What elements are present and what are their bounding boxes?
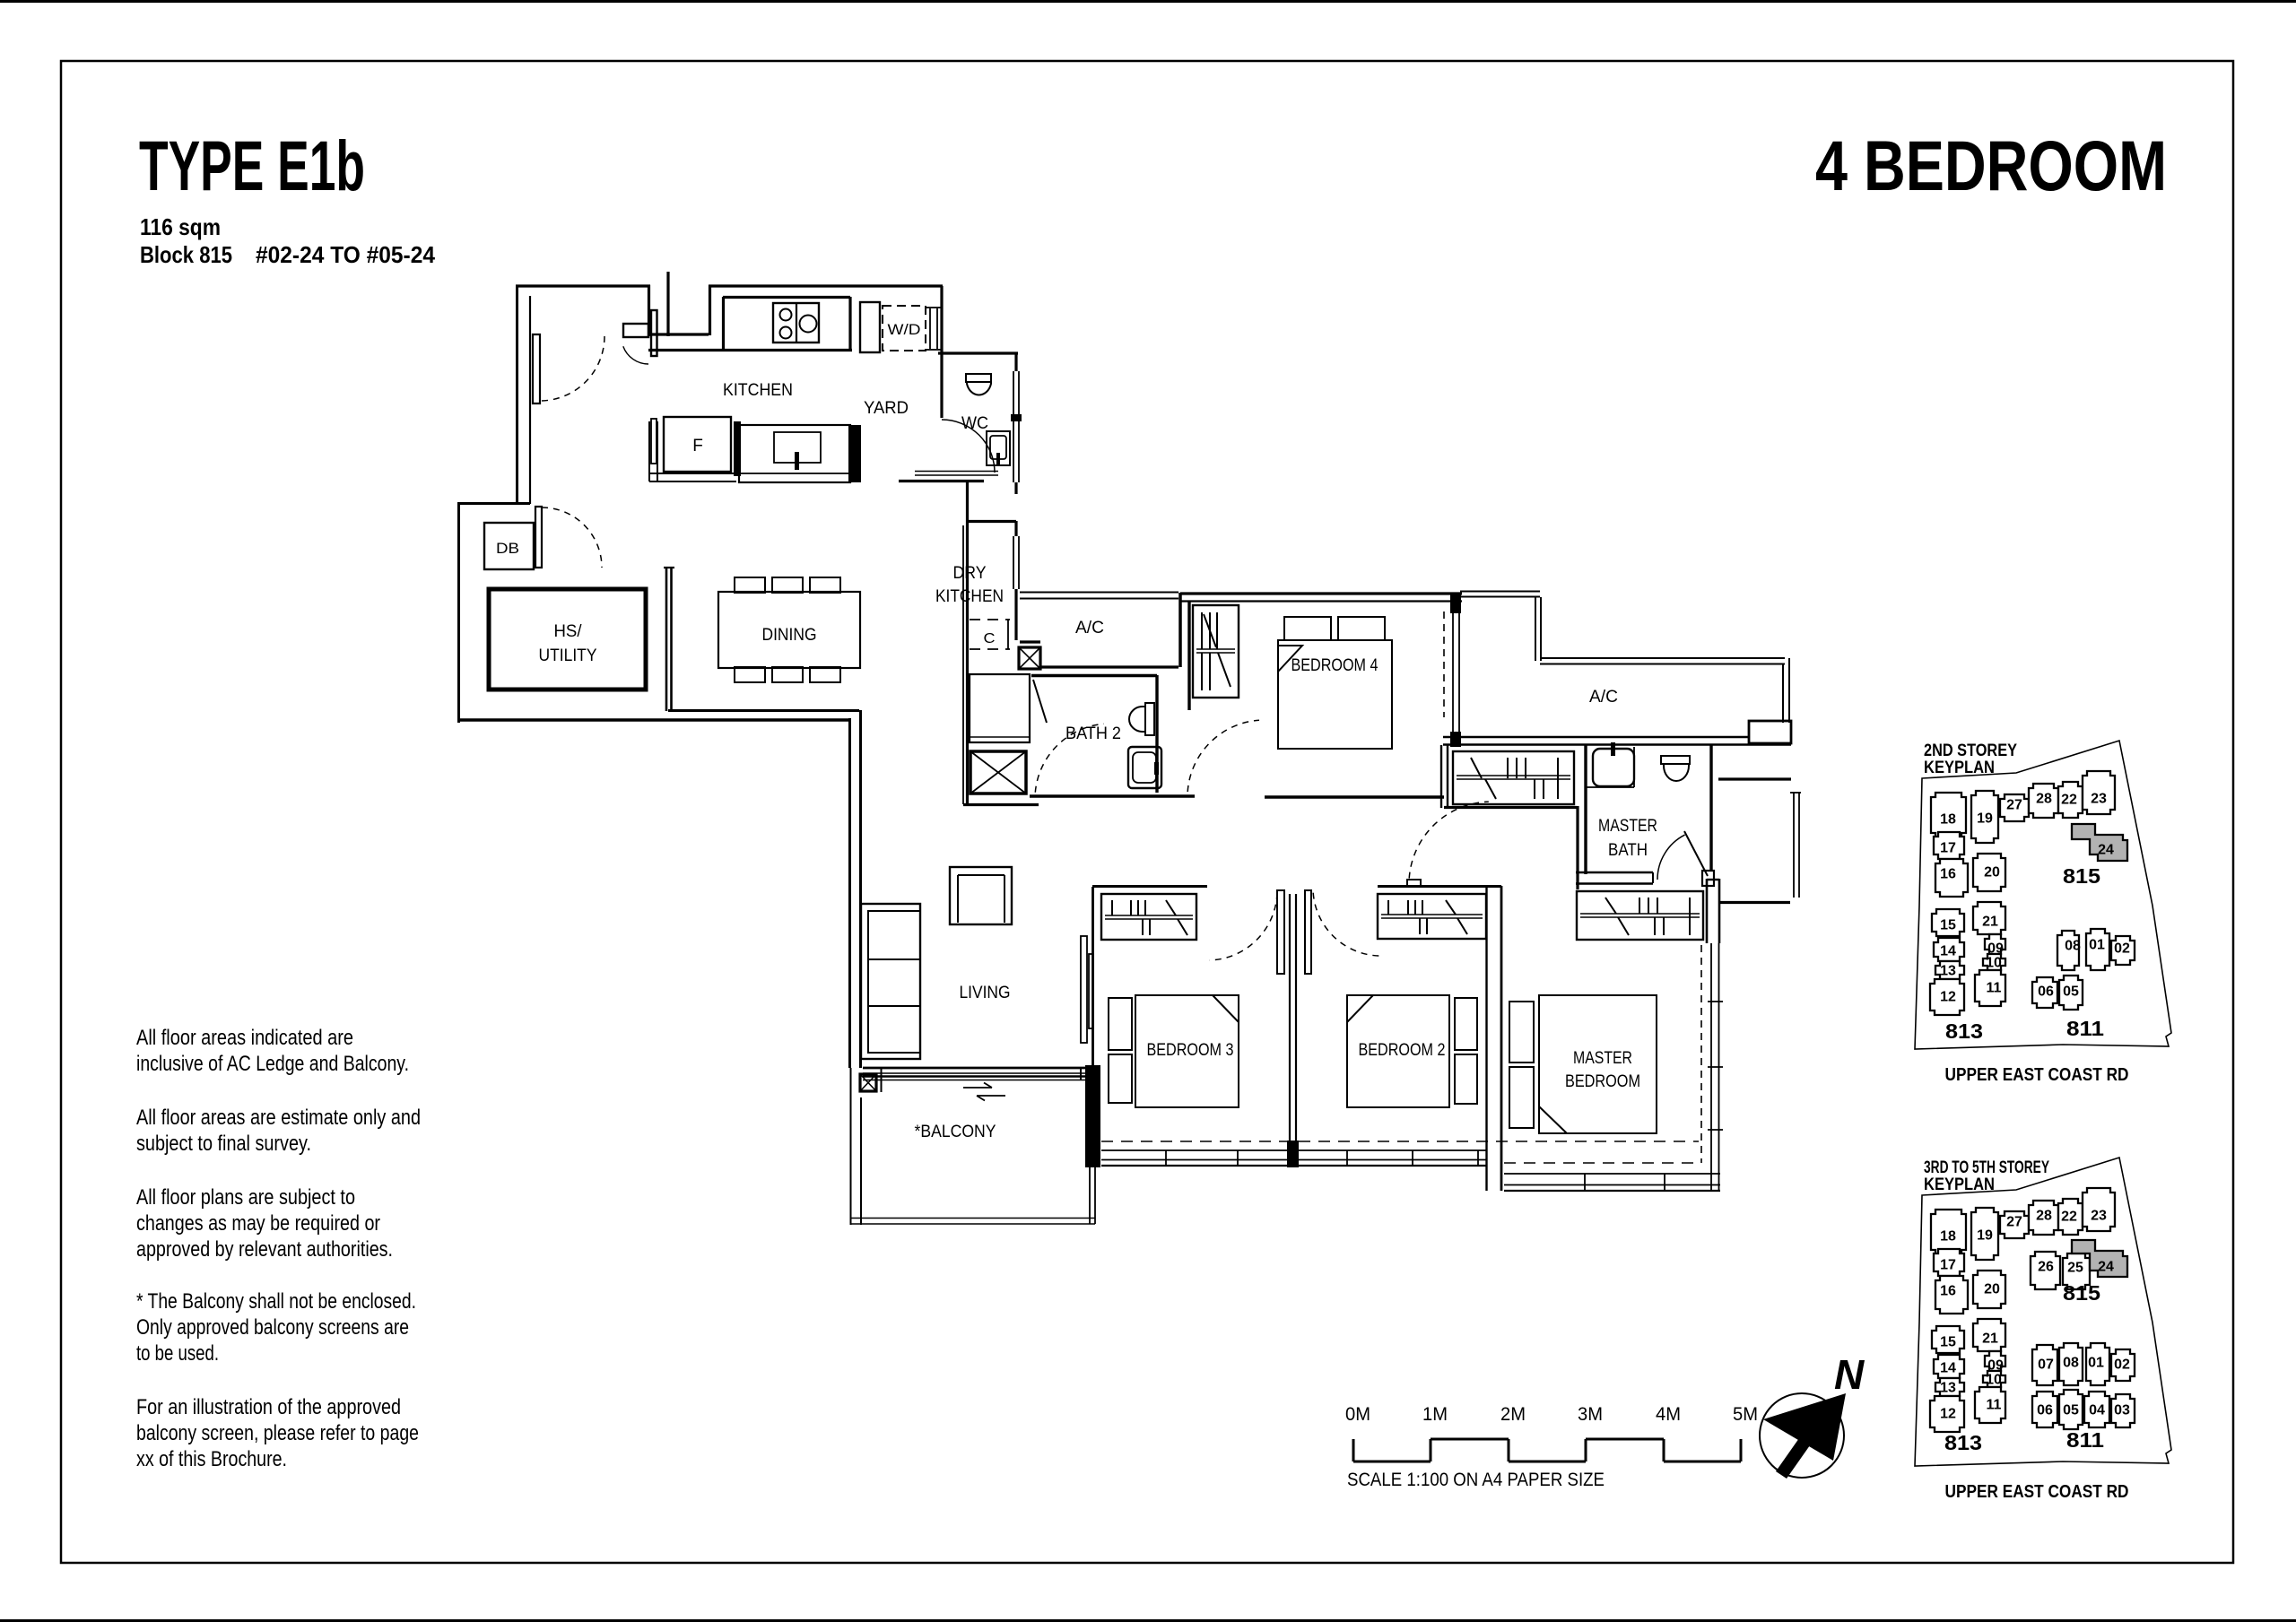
svg-text:811: 811 xyxy=(2066,1017,2104,1040)
svg-text:22: 22 xyxy=(2061,1210,2077,1225)
svg-text:C: C xyxy=(984,631,996,646)
svg-text:N: N xyxy=(1834,1351,1865,1398)
svg-text:23: 23 xyxy=(2091,1209,2107,1224)
svg-text:19: 19 xyxy=(1977,1228,1993,1244)
svg-text:28: 28 xyxy=(2036,1209,2052,1224)
svg-text:01: 01 xyxy=(2089,938,2105,953)
svg-text:0M: 0M xyxy=(1345,1404,1370,1425)
svg-text:LIVING: LIVING xyxy=(960,984,1011,1002)
svg-text:BEDROOM: BEDROOM xyxy=(1565,1072,1640,1091)
svg-text:A/C: A/C xyxy=(1589,688,1618,707)
svg-text:13: 13 xyxy=(1940,964,1956,979)
svg-text:25: 25 xyxy=(2067,1261,2083,1276)
svg-text:18: 18 xyxy=(1940,812,1956,828)
svg-text:16: 16 xyxy=(1940,1284,1956,1299)
svg-text:05: 05 xyxy=(2063,984,2079,1000)
svg-text:2M: 2M xyxy=(1500,1404,1526,1425)
svg-text:to be used.: to be used. xyxy=(136,1341,219,1366)
svg-text:16: 16 xyxy=(1940,867,1956,882)
svg-text:05: 05 xyxy=(2063,1403,2079,1418)
svg-text:DRY: DRY xyxy=(953,564,987,583)
svg-text:UTILITY: UTILITY xyxy=(539,646,597,665)
svg-text:22: 22 xyxy=(2061,793,2077,808)
svg-text:27: 27 xyxy=(2006,798,2022,813)
svg-text:10: 10 xyxy=(1986,956,2002,971)
svg-text:17: 17 xyxy=(1940,1258,1956,1273)
svg-text:Block 815: Block 815 xyxy=(140,241,232,268)
svg-text:HS/: HS/ xyxy=(554,622,583,641)
svg-text:813: 813 xyxy=(1945,1019,1983,1043)
svg-text:For an illustration of the app: For an illustration of the approved xyxy=(136,1395,401,1419)
svg-text:approved by relevant authoriti: approved by relevant authorities. xyxy=(136,1237,393,1262)
svg-text:24: 24 xyxy=(2098,1260,2114,1275)
svg-text:*BALCONY: *BALCONY xyxy=(915,1123,996,1141)
svg-text:#02-24 TO #05-24: #02-24 TO #05-24 xyxy=(256,241,436,268)
svg-text:UPPER EAST COAST RD: UPPER EAST COAST RD xyxy=(1945,1482,2129,1502)
svg-text:All floor plans are subject to: All floor plans are subject to xyxy=(136,1185,355,1210)
svg-text:SCALE 1:100 ON A4 PAPER SIZE: SCALE 1:100 ON A4 PAPER SIZE xyxy=(1347,1470,1605,1490)
svg-text:20: 20 xyxy=(1984,865,2000,880)
svg-text:815: 815 xyxy=(2063,1281,2100,1305)
svg-text:W/D: W/D xyxy=(888,321,921,338)
svg-text:KITCHEN: KITCHEN xyxy=(723,381,793,400)
svg-text:13: 13 xyxy=(1940,1381,1956,1396)
svg-text:MASTER: MASTER xyxy=(1573,1049,1632,1068)
svg-text:02: 02 xyxy=(2114,1357,2130,1373)
svg-text:08: 08 xyxy=(2063,1356,2079,1371)
svg-text:12: 12 xyxy=(1940,1407,1956,1422)
svg-text:* The Balcony shall not be enc: * The Balcony shall not be enclosed. xyxy=(136,1289,416,1314)
svg-text:07: 07 xyxy=(2038,1357,2054,1373)
svg-text:11: 11 xyxy=(1987,981,2002,996)
svg-text:06: 06 xyxy=(2037,1403,2053,1418)
svg-text:All floor areas indicated are: All floor areas indicated are xyxy=(136,1026,353,1050)
svg-text:14: 14 xyxy=(1940,944,1956,959)
svg-text:06: 06 xyxy=(2038,984,2054,1000)
svg-text:21: 21 xyxy=(1982,915,1998,930)
svg-text:27: 27 xyxy=(2006,1215,2022,1230)
svg-text:811: 811 xyxy=(2066,1428,2104,1452)
svg-text:5M: 5M xyxy=(1733,1404,1758,1425)
svg-text:TYPE E1b: TYPE E1b xyxy=(139,126,365,205)
svg-text:BEDROOM 2: BEDROOM 2 xyxy=(1359,1041,1446,1060)
svg-text:10: 10 xyxy=(1986,1373,2002,1388)
svg-text:02: 02 xyxy=(2114,941,2130,957)
svg-text:BEDROOM 4: BEDROOM 4 xyxy=(1291,656,1378,675)
svg-text:MASTER: MASTER xyxy=(1598,817,1657,836)
svg-text:xx of this Brochure.: xx of this Brochure. xyxy=(136,1447,287,1471)
svg-text:116 sqm: 116 sqm xyxy=(140,213,221,240)
svg-text:F: F xyxy=(692,437,703,455)
svg-text:28: 28 xyxy=(2036,792,2052,807)
svg-text:18: 18 xyxy=(1940,1229,1956,1245)
svg-text:15: 15 xyxy=(1940,1335,1956,1350)
svg-text:815: 815 xyxy=(2063,864,2100,888)
svg-text:23: 23 xyxy=(2091,792,2107,807)
svg-text:BATH: BATH xyxy=(1608,841,1648,860)
svg-text:11: 11 xyxy=(1987,1398,2002,1413)
svg-text:BEDROOM 3: BEDROOM 3 xyxy=(1147,1041,1234,1060)
svg-text:KITCHEN: KITCHEN xyxy=(935,587,1004,606)
svg-text:03: 03 xyxy=(2114,1403,2130,1418)
svg-text:813: 813 xyxy=(1944,1431,1982,1454)
svg-text:3M: 3M xyxy=(1578,1404,1603,1425)
svg-text:17: 17 xyxy=(1940,841,1956,856)
svg-text:24: 24 xyxy=(2098,843,2114,858)
svg-text:balcony screen, please refer t: balcony screen, please refer to page xyxy=(136,1421,419,1445)
svg-text:DINING: DINING xyxy=(762,626,817,645)
svg-text:19: 19 xyxy=(1977,811,1993,827)
svg-text:inclusive of AC Ledge and Balc: inclusive of AC Ledge and Balcony. xyxy=(136,1052,409,1076)
svg-text:26: 26 xyxy=(2038,1260,2054,1275)
svg-text:08: 08 xyxy=(2065,939,2081,954)
svg-text:DB: DB xyxy=(496,540,519,557)
svg-text:21: 21 xyxy=(1982,1331,1998,1347)
svg-text:04: 04 xyxy=(2089,1403,2105,1418)
svg-text:changes as may be required or: changes as may be required or xyxy=(136,1211,380,1236)
svg-text:WC: WC xyxy=(961,414,988,433)
svg-text:3RD TO 5TH STOREY: 3RD TO 5TH STOREY xyxy=(1924,1158,2049,1177)
svg-text:BATH 2: BATH 2 xyxy=(1065,724,1121,743)
svg-text:4M: 4M xyxy=(1656,1404,1681,1425)
svg-text:20: 20 xyxy=(1984,1282,2000,1297)
svg-text:12: 12 xyxy=(1940,990,1956,1005)
svg-text:4 BEDROOM: 4 BEDROOM xyxy=(1815,126,2167,205)
svg-text:1M: 1M xyxy=(1422,1404,1448,1425)
svg-text:14: 14 xyxy=(1940,1361,1956,1376)
svg-text:YARD: YARD xyxy=(864,399,909,418)
svg-text:01: 01 xyxy=(2088,1356,2104,1371)
svg-text:A/C: A/C xyxy=(1075,619,1104,638)
svg-text:UPPER EAST COAST RD: UPPER EAST COAST RD xyxy=(1945,1065,2129,1085)
svg-text:subject to final survey.: subject to final survey. xyxy=(136,1132,311,1156)
svg-text:All floor areas are estimate o: All floor areas are estimate only and xyxy=(136,1106,421,1130)
svg-text:Only approved balcony screens: Only approved balcony screens are xyxy=(136,1315,409,1340)
svg-text:2ND STOREY: 2ND STOREY xyxy=(1924,742,2017,760)
svg-text:15: 15 xyxy=(1940,918,1956,933)
